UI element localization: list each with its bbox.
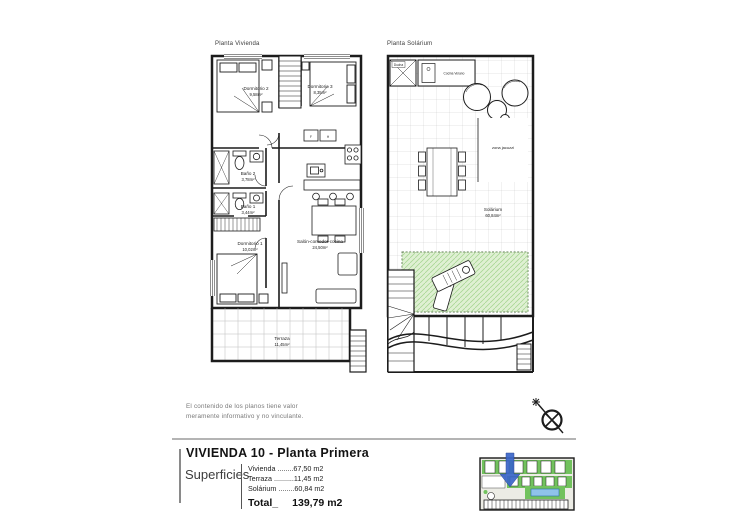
site-roundabout [488,493,495,500]
tv-unit-icon [282,263,287,293]
exterior-stairs-icon [350,330,366,372]
terrace [212,308,350,361]
kitchen-icons: F H [304,130,361,200]
superficies-label: Superficies [185,467,249,482]
svg-text:Solárium: Solárium [484,207,502,212]
surface-row: Vivienda ........67,50 m2 [248,464,342,474]
sheet-title: VIVIENDA 10 - Planta Primera [186,446,369,460]
staircase-icon [279,56,301,108]
fridge-label: F [310,135,312,139]
sofa-icon [282,253,357,303]
total-value: 139,79 m2 [292,497,342,509]
room-area: 9,58m² [249,92,263,97]
room-label: Dormitorio 2 [243,86,268,91]
summer-kitchen-icon: Cocina Verano [418,60,475,86]
spiral-stair-icon [388,270,414,372]
room-label: Terraza [274,336,290,341]
site-parking-row [484,500,568,509]
summer-kitchen-label: Cocina Verano [444,72,465,76]
disclaimer-line-2: meramente informativo y no vinculante. [186,412,304,422]
svg-text:60,84m²: 60,84m² [485,213,501,218]
titleblock-rule [179,449,181,503]
bed-icon [217,254,268,304]
surface-total: Total_ 139,79 m2 [248,497,342,509]
surface-row: Solárium ........60,84 m2 [248,484,342,494]
surface-row: Terraza ..........11,45 m2 [248,474,342,484]
room-area: 3,44m² [241,210,255,215]
floor-plan-solarium: Ducha Cocina Verano zona jacuzzi [385,48,537,380]
plan-right-title: Planta Solárium [387,41,432,47]
room-area: 10,02m² [242,247,258,252]
jacuzzi-zone: zona jacuzzi [478,118,528,182]
bathroom-fixtures [214,193,263,214]
outdoor-dining-icon [419,148,466,196]
shower-icon: Ducha [390,60,416,86]
door-arc-icon [255,133,293,249]
solarium-label: Solárium 60,84m² [484,207,502,218]
room-area: 8,35m² [313,90,327,95]
room-area: 11,45m² [274,342,290,347]
shower-label: Ducha [394,63,403,67]
dining-table-icon [312,199,356,242]
room-label: Dormitorio 3 [307,84,332,89]
surface-table: Vivienda ........67,50 m2 Terraza ......… [241,464,342,509]
floorplan-sheet: Planta Vivienda Planta Solárium [0,0,756,528]
site-plan-thumbnail [479,452,575,518]
wardrobe-icon [214,218,260,231]
pool [531,489,559,496]
ladder-icon [517,344,531,370]
north-compass-icon [526,394,574,438]
plan-left-title: Planta Vivienda [215,41,260,47]
disclaimer-line-1: El contenido de los planos tiene valor [186,402,304,412]
room-label: Baño 1 [241,204,256,209]
room-label: Baño 2 [241,171,256,176]
site-green-blob [484,490,488,494]
divider-line [172,438,576,440]
floor-plan-vivienda: F H Dormitorio 2 9,58m² Dormitori [204,48,370,380]
room-label: Salón-comedor-cocina [297,239,343,244]
total-label: Total_ [248,497,278,509]
room-area: 3,78m² [241,177,255,182]
room-label: Dormitorio 1 [237,241,262,246]
room-area: 24,50m² [312,245,328,250]
artificial-grass-zone [402,252,528,312]
disclaimer: El contenido de los planos tiene valor m… [186,402,304,421]
jacuzzi-label: zona jacuzzi [492,145,514,150]
